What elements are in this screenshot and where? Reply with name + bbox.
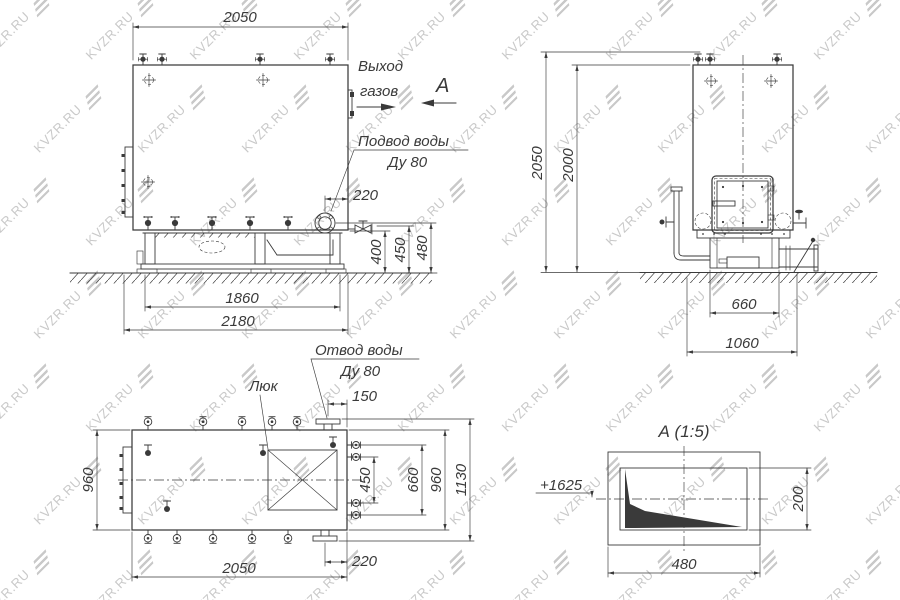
elevation-text: +1625 bbox=[540, 477, 583, 494]
valve-icon bbox=[772, 54, 781, 65]
valve-icon bbox=[164, 501, 171, 512]
side-door bbox=[122, 147, 134, 217]
valve-icon bbox=[293, 417, 301, 430]
dim-h480: 480 bbox=[414, 235, 431, 261]
dim-h2050: 2050 bbox=[529, 146, 546, 181]
callouts-plan: Люк Отвод воды Ду 80 bbox=[248, 342, 419, 449]
valve-icon bbox=[284, 530, 292, 543]
side-valve-right bbox=[793, 210, 806, 228]
valve-icon bbox=[157, 54, 166, 65]
valve-icon bbox=[255, 54, 264, 65]
valve-icon bbox=[199, 417, 207, 430]
dim-h450: 450 bbox=[392, 237, 409, 263]
technical-drawing: 2050 220 400 450 480 1860 2180 Выход bbox=[0, 0, 900, 600]
valve-icon bbox=[138, 54, 147, 65]
flange-bottom bbox=[313, 530, 337, 541]
dim-1060: 1060 bbox=[725, 335, 759, 352]
ash-door bbox=[727, 257, 759, 268]
dim-overall-width: 2180 bbox=[220, 313, 255, 330]
plan-view: Люк Отвод воды Ду 80 150 960 450 660 bbox=[80, 342, 474, 581]
dim-h2000: 2000 bbox=[560, 148, 577, 183]
center-mark-icon bbox=[143, 74, 156, 87]
gas-outlet-stub bbox=[348, 90, 354, 118]
drawing-sheet: KVZR.RUKVZR.RUKVZR.RUKVZR.RUKVZR.RUKVZR.… bbox=[0, 0, 900, 600]
side-pipe-left bbox=[660, 187, 711, 260]
valve-icon bbox=[245, 216, 254, 230]
valve-icon bbox=[693, 54, 702, 65]
valve-icon bbox=[209, 530, 217, 543]
valve-icon bbox=[248, 530, 256, 543]
view-a-letter: А bbox=[435, 75, 449, 97]
support-frame bbox=[137, 233, 346, 273]
valve-icon bbox=[173, 530, 181, 543]
valve-icon bbox=[330, 437, 337, 448]
valve-icon bbox=[143, 216, 152, 230]
dim-base-width: 1860 bbox=[225, 290, 259, 307]
center-mark-icon bbox=[765, 75, 778, 88]
dim-660: 660 bbox=[405, 467, 422, 493]
elevation-mark: +1625 bbox=[536, 477, 592, 497]
dim-960-right: 960 bbox=[428, 467, 445, 493]
valve-icon bbox=[705, 54, 714, 65]
damper-wedge bbox=[625, 469, 742, 528]
valve-icon bbox=[268, 417, 276, 430]
detail-view-a: А (1:5) +1625 480 200 bbox=[536, 422, 811, 577]
gas-outlet-label-2: газов bbox=[360, 83, 398, 100]
center-mark-icon bbox=[257, 74, 270, 87]
side-view: 2050 220 400 450 480 1860 2180 Выход bbox=[70, 9, 468, 334]
valve-icon bbox=[170, 216, 179, 230]
dim-h400: 400 bbox=[368, 239, 385, 265]
valve-icon bbox=[145, 445, 152, 456]
dim-1130: 1130 bbox=[453, 463, 470, 496]
dimensions-front: 2050 2000 660 1060 bbox=[529, 52, 797, 356]
dim-150: 150 bbox=[352, 388, 378, 405]
valve-icon bbox=[238, 417, 246, 430]
detail-title: А (1:5) bbox=[657, 422, 709, 441]
dimensions-plan: 150 960 450 660 960 1130 220 2050 bbox=[80, 388, 474, 581]
valve-icon bbox=[325, 54, 334, 65]
hatch-label: Люк bbox=[248, 378, 279, 395]
door-handle bbox=[713, 201, 735, 206]
dim-flange-offset: 220 bbox=[352, 187, 379, 204]
dim-2050-plan: 2050 bbox=[221, 560, 256, 577]
dim-480: 480 bbox=[671, 556, 697, 573]
dim-top-width: 2050 bbox=[222, 9, 257, 26]
dim-960-left: 960 bbox=[80, 467, 97, 493]
valve-icon bbox=[260, 445, 267, 456]
valve-icon bbox=[207, 216, 216, 230]
view-a-arrow-icon bbox=[421, 100, 434, 107]
center-mark-icon bbox=[142, 176, 155, 189]
water-outlet-size: Ду 80 bbox=[339, 363, 381, 380]
dim-200: 200 bbox=[790, 486, 807, 513]
center-mark-icon bbox=[705, 75, 718, 88]
gas-flow-arrow-icon bbox=[381, 104, 396, 111]
dim-450: 450 bbox=[357, 467, 374, 493]
hatch-manhole bbox=[268, 450, 337, 510]
water-inlet-size: Ду 80 bbox=[386, 154, 428, 171]
valve-icon bbox=[144, 530, 152, 543]
boiler-body-side bbox=[133, 65, 348, 230]
dim-660: 660 bbox=[731, 296, 757, 313]
front-view: 2050 2000 660 1060 bbox=[529, 52, 877, 356]
outlet-flange-top bbox=[316, 419, 340, 430]
valve-icon bbox=[283, 216, 292, 230]
valve-icon bbox=[144, 417, 152, 430]
ground-front bbox=[541, 273, 877, 284]
water-outlet-label: Отвод воды bbox=[315, 342, 403, 359]
dim-220: 220 bbox=[351, 553, 378, 570]
gas-outlet-label: Выход bbox=[358, 58, 403, 75]
water-inlet-label: Подвод воды bbox=[358, 133, 449, 150]
callouts-side: Выход газов А Подвод воды Ду 80 bbox=[331, 58, 468, 211]
blowdown-stub bbox=[779, 238, 818, 272]
